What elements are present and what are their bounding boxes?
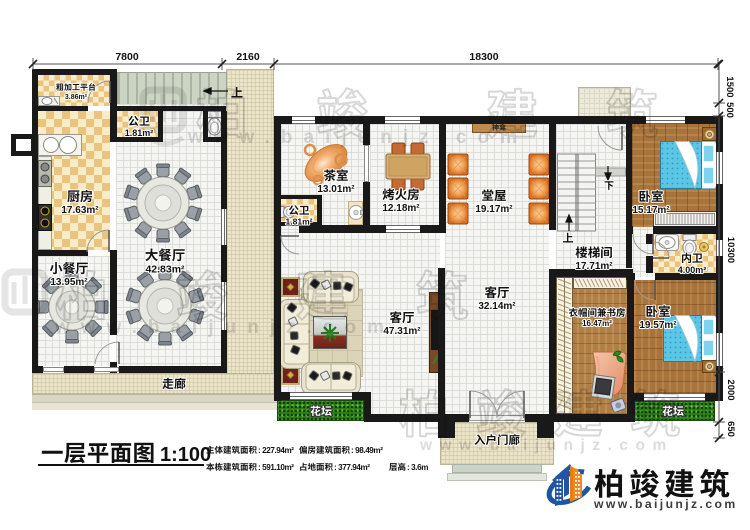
svg-text:13.01m²: 13.01m² — [317, 184, 355, 195]
svg-text:47.31m²: 47.31m² — [383, 326, 421, 337]
svg-text:1.81m²: 1.81m² — [286, 217, 313, 227]
svg-text:2160: 2160 — [236, 51, 260, 63]
svg-text:7800: 7800 — [115, 51, 139, 63]
svg-text:: 3.6m: : 3.6m — [407, 463, 428, 472]
svg-text:19.17m²: 19.17m² — [475, 204, 513, 215]
svg-text:500: 500 — [724, 102, 735, 118]
svg-text:650: 650 — [725, 421, 736, 437]
svg-text:: 227.94m²: : 227.94m² — [258, 446, 294, 455]
svg-text:17.71m²: 17.71m² — [575, 261, 613, 272]
svg-text:12.18m²: 12.18m² — [382, 203, 420, 214]
svg-text:13.95m²: 13.95m² — [50, 277, 88, 288]
svg-text:15.17m²: 15.17m² — [632, 205, 670, 216]
svg-text:32.14m²: 32.14m² — [478, 301, 516, 312]
svg-text:: 591.10m²: : 591.10m² — [258, 463, 294, 472]
svg-text:16.47m²: 16.47m² — [582, 319, 612, 328]
svg-text:4.00m²: 4.00m² — [678, 265, 707, 275]
svg-text:www.baijunjz.com: www.baijunjz.com — [593, 497, 738, 511]
svg-text:: 98.49m²: : 98.49m² — [351, 446, 383, 455]
svg-text:3.86m²: 3.86m² — [65, 94, 88, 101]
svg-text:18300: 18300 — [469, 51, 498, 63]
svg-text:1500: 1500 — [724, 76, 735, 97]
svg-text:42.83m²: 42.83m² — [145, 264, 185, 276]
svg-text:: 377.94m²: : 377.94m² — [334, 463, 370, 472]
svg-text:19.57m²: 19.57m² — [639, 320, 677, 331]
svg-text:2000: 2000 — [725, 379, 736, 400]
svg-text:10300: 10300 — [725, 237, 736, 263]
svg-text:17.63m²: 17.63m² — [61, 205, 99, 216]
svg-text:1.81m²: 1.81m² — [125, 128, 154, 138]
svg-text:1:100: 1:100 — [160, 444, 211, 466]
